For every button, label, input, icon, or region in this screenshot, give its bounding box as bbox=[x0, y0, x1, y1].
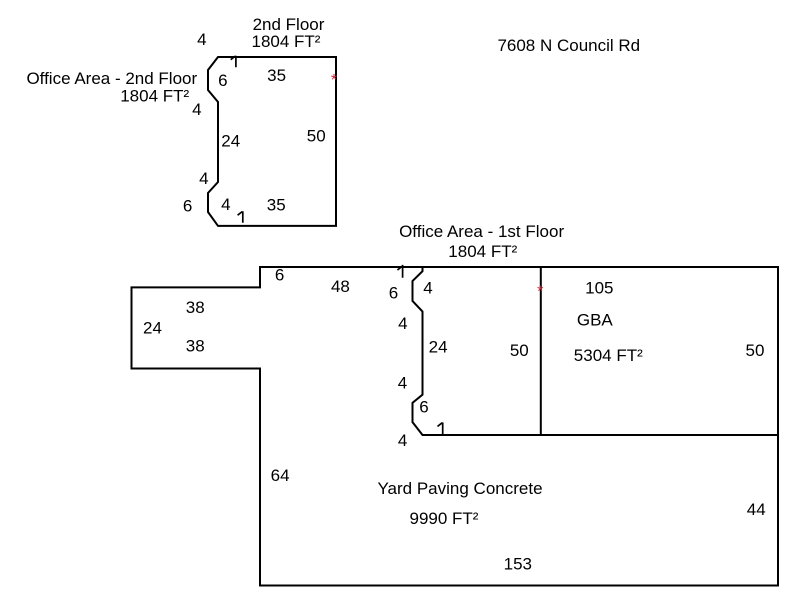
svg-text:*: * bbox=[537, 284, 543, 301]
svg-text:44: 44 bbox=[747, 500, 766, 519]
svg-text:6: 6 bbox=[218, 71, 227, 90]
svg-text:64: 64 bbox=[271, 466, 290, 485]
svg-text:24: 24 bbox=[221, 131, 240, 150]
svg-text:4: 4 bbox=[199, 169, 208, 188]
svg-text:1804 FT²: 1804 FT² bbox=[252, 32, 321, 51]
svg-text:6: 6 bbox=[183, 197, 192, 216]
svg-text:4: 4 bbox=[192, 100, 201, 119]
svg-text:6: 6 bbox=[419, 398, 428, 417]
svg-text:7608 N Council Rd: 7608 N Council Rd bbox=[497, 36, 640, 55]
svg-text:48: 48 bbox=[331, 277, 350, 296]
svg-text:50: 50 bbox=[307, 127, 326, 146]
svg-text:38: 38 bbox=[186, 336, 205, 355]
svg-text:50: 50 bbox=[746, 341, 765, 360]
svg-text:4: 4 bbox=[221, 195, 230, 214]
svg-text:GBA: GBA bbox=[577, 311, 614, 330]
svg-text:5304 FT²: 5304 FT² bbox=[574, 346, 643, 365]
svg-text:4: 4 bbox=[398, 431, 407, 450]
svg-text:4: 4 bbox=[423, 279, 432, 298]
svg-text:9990 FT²: 9990 FT² bbox=[410, 509, 479, 528]
svg-text:Yard Paving Concrete: Yard Paving Concrete bbox=[377, 479, 542, 498]
svg-text:6: 6 bbox=[389, 283, 398, 302]
svg-text:*: * bbox=[331, 72, 337, 89]
svg-text:6: 6 bbox=[275, 266, 284, 285]
svg-text:105: 105 bbox=[585, 279, 613, 298]
svg-text:1804 FT²: 1804 FT² bbox=[120, 87, 189, 106]
svg-text:1804 FT²: 1804 FT² bbox=[448, 242, 517, 261]
svg-text:4: 4 bbox=[197, 30, 206, 49]
svg-text:153: 153 bbox=[504, 555, 532, 574]
svg-text:4: 4 bbox=[398, 374, 407, 393]
svg-text:35: 35 bbox=[267, 66, 286, 85]
svg-text:24: 24 bbox=[143, 318, 162, 337]
svg-text:38: 38 bbox=[186, 298, 205, 317]
svg-text:Office Area - 2nd Floor: Office Area - 2nd Floor bbox=[26, 69, 197, 88]
svg-text:24: 24 bbox=[429, 338, 448, 357]
svg-text:Office Area - 1st Floor: Office Area - 1st Floor bbox=[399, 222, 564, 241]
svg-text:50: 50 bbox=[510, 341, 529, 360]
svg-text:4: 4 bbox=[398, 314, 407, 333]
svg-text:35: 35 bbox=[267, 196, 286, 215]
